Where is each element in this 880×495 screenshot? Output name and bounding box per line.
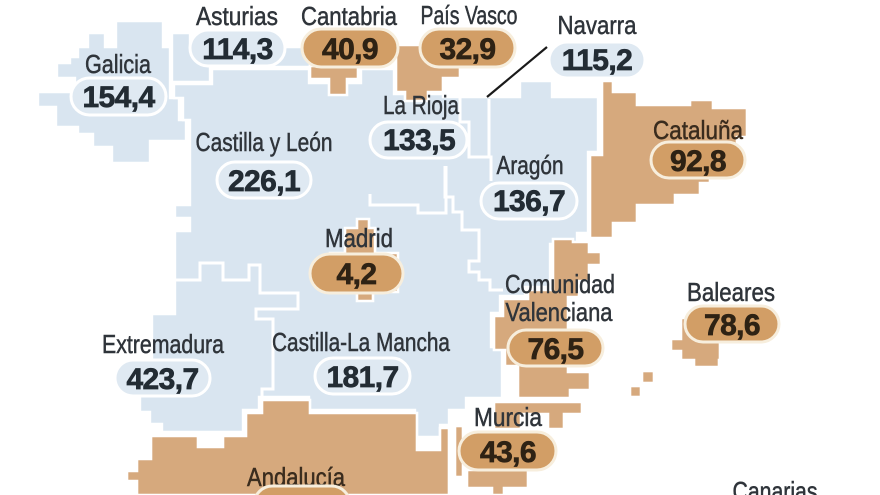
- svg-text:Valenciana: Valenciana: [506, 297, 613, 327]
- svg-text:Asturias: Asturias: [196, 1, 278, 31]
- svg-text:115,2: 115,2: [562, 44, 632, 77]
- svg-text:Cantabria: Cantabria: [301, 1, 397, 31]
- svg-text:136,7: 136,7: [493, 185, 565, 218]
- svg-text:78,6: 78,6: [704, 309, 760, 342]
- svg-text:Galicia: Galicia: [85, 49, 151, 79]
- svg-text:Madrid: Madrid: [325, 223, 393, 253]
- svg-text:Extremadura: Extremadura: [102, 329, 224, 359]
- svg-text:Castilla-La Mancha: Castilla-La Mancha: [272, 327, 450, 357]
- svg-text:País Vasco: País Vasco: [421, 0, 518, 30]
- svg-text:43,6: 43,6: [480, 436, 536, 469]
- svg-text:Canarias: Canarias: [733, 476, 818, 495]
- svg-text:Murcia: Murcia: [474, 402, 542, 432]
- svg-text:76,5: 76,5: [528, 333, 584, 366]
- svg-text:154,4: 154,4: [82, 81, 155, 114]
- svg-text:Comunidad: Comunidad: [505, 269, 615, 299]
- svg-text:133,5: 133,5: [383, 124, 455, 157]
- svg-text:Aragón: Aragón: [497, 150, 564, 180]
- svg-text:4,2: 4,2: [337, 258, 377, 291]
- svg-text:Baleares: Baleares: [687, 277, 775, 307]
- svg-text:181,7: 181,7: [326, 361, 398, 394]
- svg-text:92,8: 92,8: [670, 145, 726, 178]
- svg-text:40,9: 40,9: [322, 33, 378, 66]
- svg-text:32,9: 32,9: [440, 33, 496, 66]
- svg-text:Navarra: Navarra: [558, 10, 637, 40]
- svg-text:Castilla y León: Castilla y León: [196, 127, 333, 157]
- svg-text:114,3: 114,3: [202, 33, 272, 66]
- svg-text:226,1: 226,1: [228, 165, 300, 198]
- svg-text:La Rioja: La Rioja: [383, 90, 459, 120]
- svg-text:423,7: 423,7: [126, 363, 198, 396]
